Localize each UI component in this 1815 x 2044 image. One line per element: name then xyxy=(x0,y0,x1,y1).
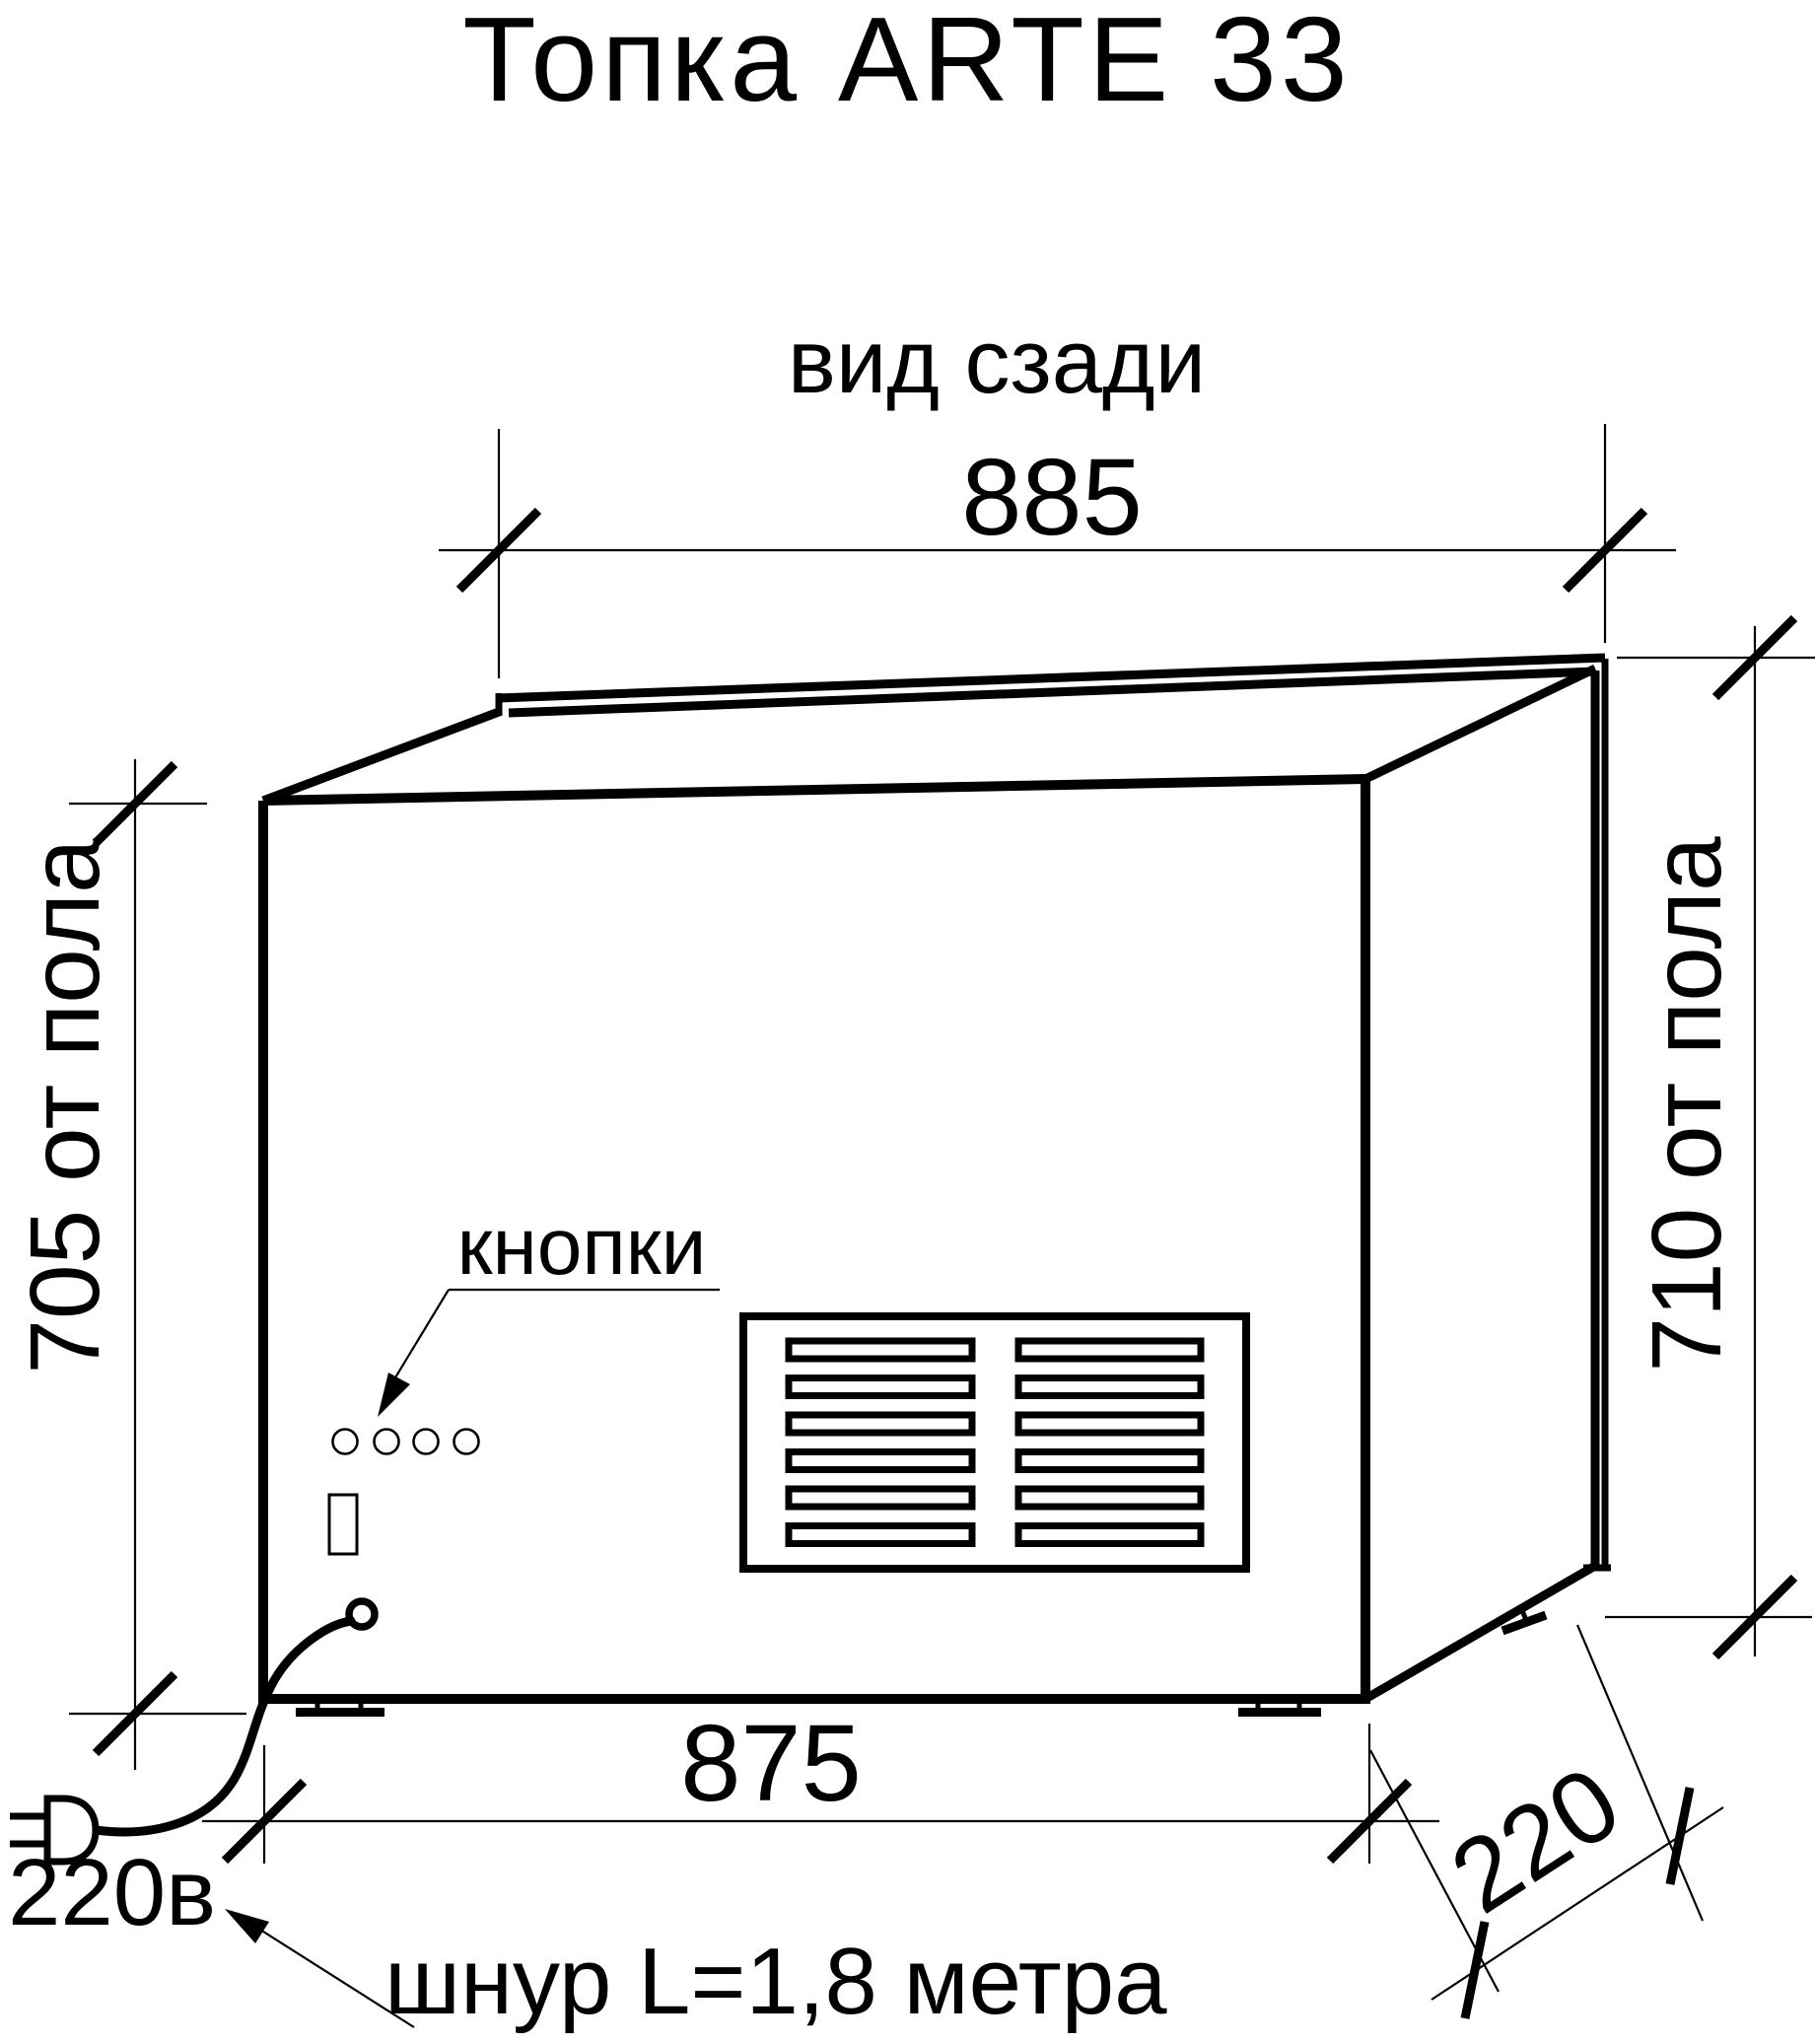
power-label: 220в xyxy=(8,1840,216,1945)
grille-slot xyxy=(789,1415,972,1433)
button-circle xyxy=(375,1430,399,1454)
button-circle xyxy=(333,1430,358,1454)
buttons-label: кнопки xyxy=(457,1202,707,1292)
leader-arrow-icon xyxy=(225,1909,269,1943)
top-face-left-slant xyxy=(263,712,499,801)
page-title: Топка ARTE 33 xyxy=(462,0,1351,126)
fireplace-rear-view-drawing: Топка ARTE 33 вид сзади xyxy=(0,0,1815,2044)
grille-slot xyxy=(1018,1452,1201,1470)
dimension-value: 710 от пола xyxy=(1632,836,1742,1373)
buttons-annotation: кнопки xyxy=(378,1202,720,1417)
power-cord-assembly xyxy=(10,1621,351,1862)
leader-arrow-icon xyxy=(378,1373,410,1417)
grille-slot xyxy=(789,1489,972,1507)
grille-slot xyxy=(789,1341,972,1359)
dimension-value: 885 xyxy=(961,437,1143,558)
dimension-right-height: 710 от пола xyxy=(1605,618,1815,1656)
grille-slot xyxy=(789,1526,972,1544)
grille-slot xyxy=(1018,1378,1201,1396)
grille-slot xyxy=(1018,1526,1201,1544)
top-face-right-slant xyxy=(1365,669,1595,779)
power-cord xyxy=(96,1621,351,1832)
vent-grille xyxy=(743,1316,1246,1569)
view-label: вид сзади xyxy=(788,312,1206,412)
grille-slot xyxy=(1018,1489,1201,1507)
dimension-bottom-width: 875 xyxy=(202,1703,1439,1864)
dimension-left-height: 705 от пола xyxy=(10,759,246,1770)
button-circle xyxy=(414,1430,439,1454)
dimension-top-width: 885 xyxy=(439,424,1676,678)
grille-slot xyxy=(789,1452,972,1470)
technical-drawing-page: Топка ARTE 33 вид сзади xyxy=(0,0,1815,2044)
grille-slot xyxy=(1018,1341,1201,1359)
front-top-edge xyxy=(263,779,1365,801)
switch-slot xyxy=(329,1495,357,1554)
dimension-value: 875 xyxy=(680,1703,862,1824)
power-annotation: 220в шнур L=1,8 метра xyxy=(8,1840,1167,2034)
grille-slot xyxy=(1018,1415,1201,1433)
grille-slot xyxy=(789,1378,972,1396)
control-buttons xyxy=(333,1430,479,1454)
cord-label: шнур L=1,8 метра xyxy=(384,1929,1167,2034)
button-circle xyxy=(454,1430,479,1454)
side-bottom-edge xyxy=(1365,1566,1595,1699)
dimension-value: 220 xyxy=(1431,1744,1640,1936)
extension-line xyxy=(1577,1625,1703,1921)
dimension-value: 705 от пола xyxy=(10,838,120,1374)
